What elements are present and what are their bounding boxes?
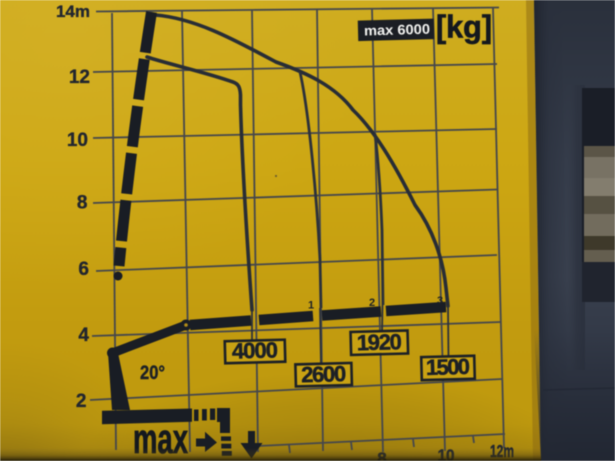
svg-text:max 6000: max 6000 [364, 21, 431, 39]
svg-text:10: 10 [67, 130, 88, 151]
svg-text:1: 1 [308, 300, 314, 312]
svg-text:4: 4 [78, 325, 89, 346]
svg-text:[kg]: [kg] [436, 9, 492, 45]
svg-text:1500: 1500 [426, 354, 471, 380]
svg-text:2: 2 [369, 297, 375, 309]
svg-text:1920: 1920 [356, 329, 402, 355]
svg-text:6: 6 [78, 259, 89, 280]
svg-text:3: 3 [437, 295, 443, 307]
svg-text:12: 12 [69, 67, 90, 88]
svg-text:4000: 4000 [232, 337, 279, 363]
svg-text:14m: 14m [56, 2, 90, 21]
svg-text:20°: 20° [140, 363, 165, 384]
svg-text:8: 8 [77, 193, 88, 214]
svg-text:2: 2 [76, 391, 87, 412]
svg-text:2600: 2600 [301, 361, 347, 387]
